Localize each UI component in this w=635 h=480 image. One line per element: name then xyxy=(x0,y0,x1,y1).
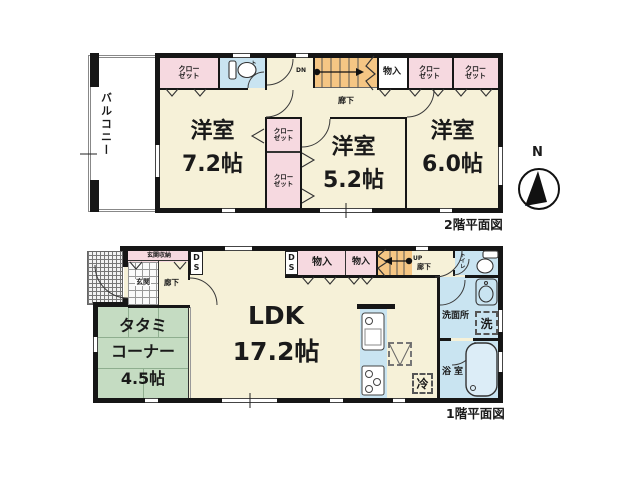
wall xyxy=(300,119,302,208)
wall xyxy=(357,304,395,309)
sliding-door xyxy=(190,307,191,398)
wall xyxy=(90,180,99,212)
window xyxy=(330,398,343,403)
closet-2f-topright-1: クローゼット xyxy=(407,58,452,88)
wall xyxy=(285,275,440,278)
stairs-dn-label: DN xyxy=(296,68,306,74)
wall xyxy=(128,260,190,261)
wall xyxy=(473,338,503,341)
closet-2f-center-2: クローゼット xyxy=(267,153,300,208)
wall xyxy=(123,251,128,267)
floor-plan-canvas: バルコニー クローゼット トイレ DN 物入 クローゼット クローゼット 廊下 … xyxy=(0,0,635,480)
entrance-label: 玄関 xyxy=(135,279,151,286)
toilet-room-2f xyxy=(218,58,265,88)
closet-2f-center-1: クローゼット xyxy=(267,119,300,151)
window xyxy=(440,208,452,213)
stairs-2f xyxy=(313,58,377,88)
compass-icon xyxy=(519,169,559,209)
wall xyxy=(267,117,302,119)
wall xyxy=(452,58,454,88)
wall xyxy=(155,53,160,213)
balcony-label: バルコニー xyxy=(100,92,112,157)
window xyxy=(145,398,158,403)
hallway-2f-label: 廊下 xyxy=(338,97,354,105)
washroom-label: 洗面所 xyxy=(442,312,469,321)
compass-n-label: N xyxy=(532,146,543,160)
wall xyxy=(345,251,346,275)
storage-2f: 物入 xyxy=(377,58,407,88)
toilet-1f-label: トイレ xyxy=(458,252,464,269)
duct-space-2: DS xyxy=(285,251,298,275)
washer-box: 洗 xyxy=(475,311,498,335)
sliding-door xyxy=(188,307,189,398)
room-yoshitsu-7-2: 洋室7.2帖 xyxy=(160,92,265,204)
window xyxy=(320,208,372,213)
wall xyxy=(313,87,377,88)
wall xyxy=(377,88,498,90)
wall xyxy=(376,251,378,275)
toilet-2f-label: トイレ xyxy=(249,60,255,77)
kitchen-counter xyxy=(360,309,387,398)
wall xyxy=(188,248,190,280)
window xyxy=(498,352,503,372)
closet-2f-topleft: クローゼット xyxy=(160,58,218,88)
window xyxy=(416,246,428,251)
wall xyxy=(265,58,267,90)
window xyxy=(393,398,405,403)
wall xyxy=(465,275,503,278)
bathroom-label: 浴室 xyxy=(442,368,466,377)
window xyxy=(296,53,308,58)
wall xyxy=(267,151,300,153)
window xyxy=(222,208,235,213)
wall xyxy=(120,246,503,251)
storage-1f-2: 物入 xyxy=(346,251,376,275)
wall xyxy=(405,117,407,208)
wall xyxy=(93,302,98,403)
duct-space-1: DS xyxy=(190,251,203,275)
entrance-porch xyxy=(87,251,123,305)
ldk-label: LDK17.2帖 xyxy=(200,293,352,375)
window xyxy=(498,147,503,185)
window xyxy=(155,145,160,177)
closet-2f-topright-2: クローゼット xyxy=(453,58,498,88)
window xyxy=(222,398,277,403)
wall xyxy=(407,58,409,88)
wall xyxy=(155,53,503,58)
wall xyxy=(330,117,407,119)
storage-1f-1: 物入 xyxy=(298,251,346,275)
window xyxy=(233,53,250,58)
wall xyxy=(453,251,455,258)
wall xyxy=(377,58,379,88)
room-yoshitsu-5-2: 洋室5.2帖 xyxy=(302,121,405,206)
wall xyxy=(90,53,99,87)
wall xyxy=(160,88,248,90)
wall xyxy=(453,270,455,276)
window xyxy=(93,337,98,352)
floor2-title: 2階平面図 xyxy=(444,218,503,231)
hallway-1f-right-label: 廊下 xyxy=(417,264,431,271)
window xyxy=(498,310,503,332)
stairs-1f xyxy=(377,251,412,275)
kitchen-table-box xyxy=(388,342,412,366)
hallway-1f-left-label: 廊下 xyxy=(164,279,179,287)
wall xyxy=(218,58,220,88)
wall xyxy=(437,338,451,341)
wall xyxy=(128,305,190,308)
room-yoshitsu-6-0: 洋室6.0帖 xyxy=(407,92,498,204)
tatami-label: タタミコーナー4.5帖 xyxy=(98,309,188,396)
window xyxy=(225,246,252,251)
wall xyxy=(265,117,267,208)
floor1-title: 1階平面図 xyxy=(446,407,505,420)
stairs-up-label: UP xyxy=(413,256,422,262)
fridge-box: 冷 xyxy=(412,373,433,394)
wall xyxy=(313,58,315,88)
wall xyxy=(498,53,503,213)
wall xyxy=(158,261,159,305)
